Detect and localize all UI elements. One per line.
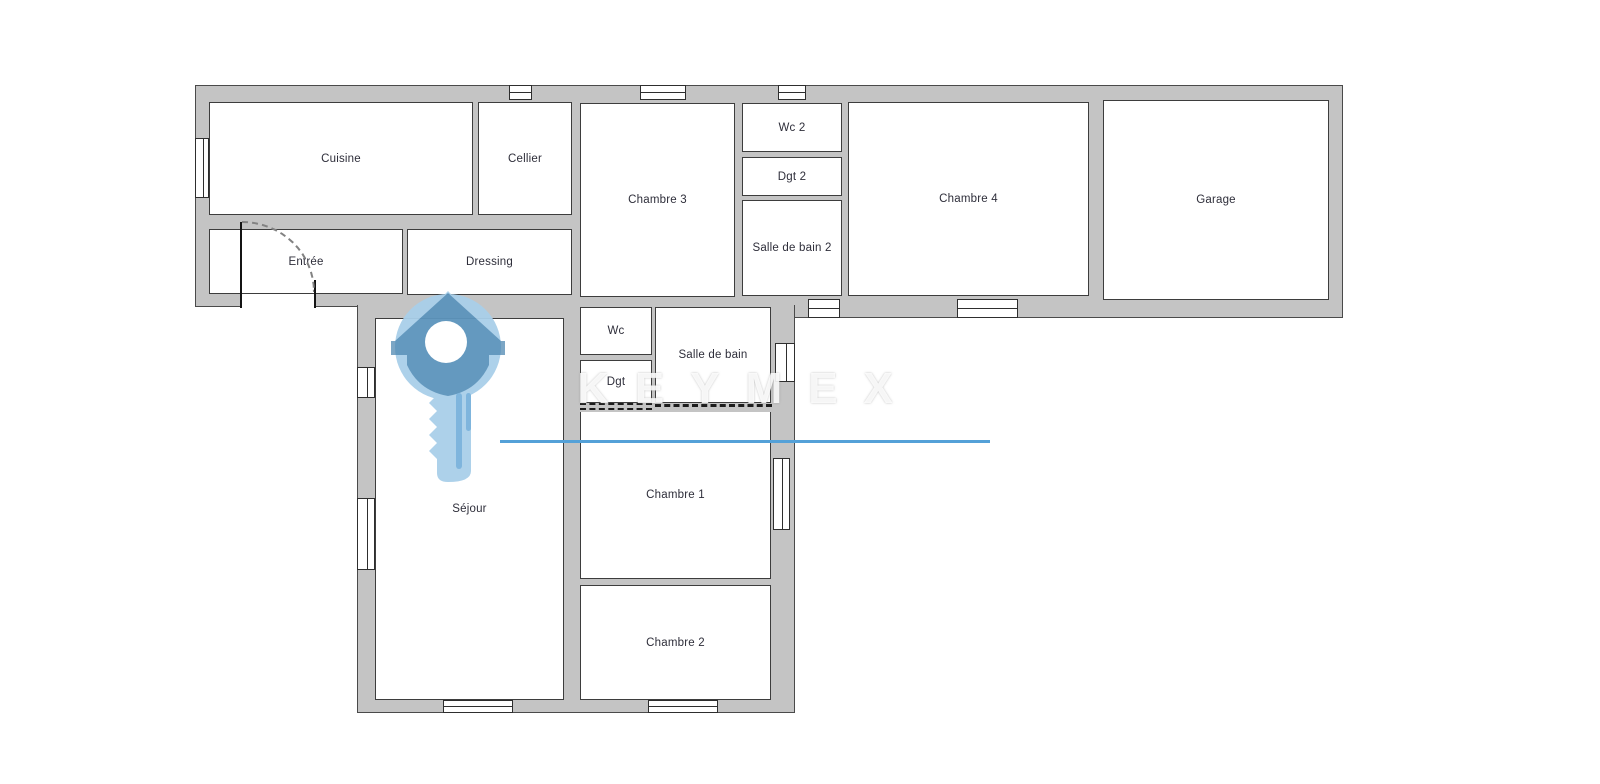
window xyxy=(195,138,209,198)
entrance-door-opening xyxy=(242,294,315,307)
window xyxy=(640,85,686,100)
room-cuisine: Cuisine xyxy=(209,102,473,215)
room-label-chambre-4: Chambre 4 xyxy=(939,193,998,205)
window xyxy=(509,85,532,100)
room-label-dressing: Dressing xyxy=(466,256,513,268)
window xyxy=(773,458,790,530)
watermark-key-icon xyxy=(385,285,510,495)
watermark-brand-text: KEYMEX xyxy=(488,364,1008,414)
window xyxy=(778,85,806,100)
room-label-garage: Garage xyxy=(1196,194,1236,206)
window xyxy=(648,700,718,713)
room-wc: Wc xyxy=(580,307,652,355)
window xyxy=(357,367,375,398)
window xyxy=(808,299,840,318)
room-label-chambre-2: Chambre 2 xyxy=(646,637,705,649)
room-label-chambre-3: Chambre 3 xyxy=(628,194,687,206)
room-garage: Garage xyxy=(1103,100,1329,300)
room-salle-de-bain-2: Salle de bain 2 xyxy=(742,200,842,296)
room-label-dgt-2: Dgt 2 xyxy=(778,171,807,183)
window xyxy=(957,299,1018,318)
room-label-cellier: Cellier xyxy=(508,153,542,165)
room-chambre-3: Chambre 3 xyxy=(580,103,735,297)
watermark-underline xyxy=(500,440,990,443)
room-label-wc-2: Wc 2 xyxy=(779,122,806,134)
room-label-salle-de-bain: Salle de bain xyxy=(678,349,747,361)
room-label-salle-de-bain-2: Salle de bain 2 xyxy=(752,242,831,254)
room-label-chambre-1: Chambre 1 xyxy=(646,489,705,501)
room-cellier: Cellier xyxy=(478,102,572,215)
room-chambre-4: Chambre 4 xyxy=(848,102,1089,296)
floor-plan: Cuisine Cellier Chambre 3 Wc 2 Dgt 2 Sal… xyxy=(0,0,1600,784)
room-chambre-1: Chambre 1 xyxy=(580,412,771,579)
room-label-sejour: Séjour xyxy=(452,503,486,515)
window xyxy=(443,700,513,713)
room-chambre-2: Chambre 2 xyxy=(580,585,771,700)
room-dgt-2: Dgt 2 xyxy=(742,157,842,196)
room-wc-2: Wc 2 xyxy=(742,103,842,152)
room-label-cuisine: Cuisine xyxy=(321,153,361,165)
room-label-wc: Wc xyxy=(607,325,624,337)
window xyxy=(357,498,375,570)
